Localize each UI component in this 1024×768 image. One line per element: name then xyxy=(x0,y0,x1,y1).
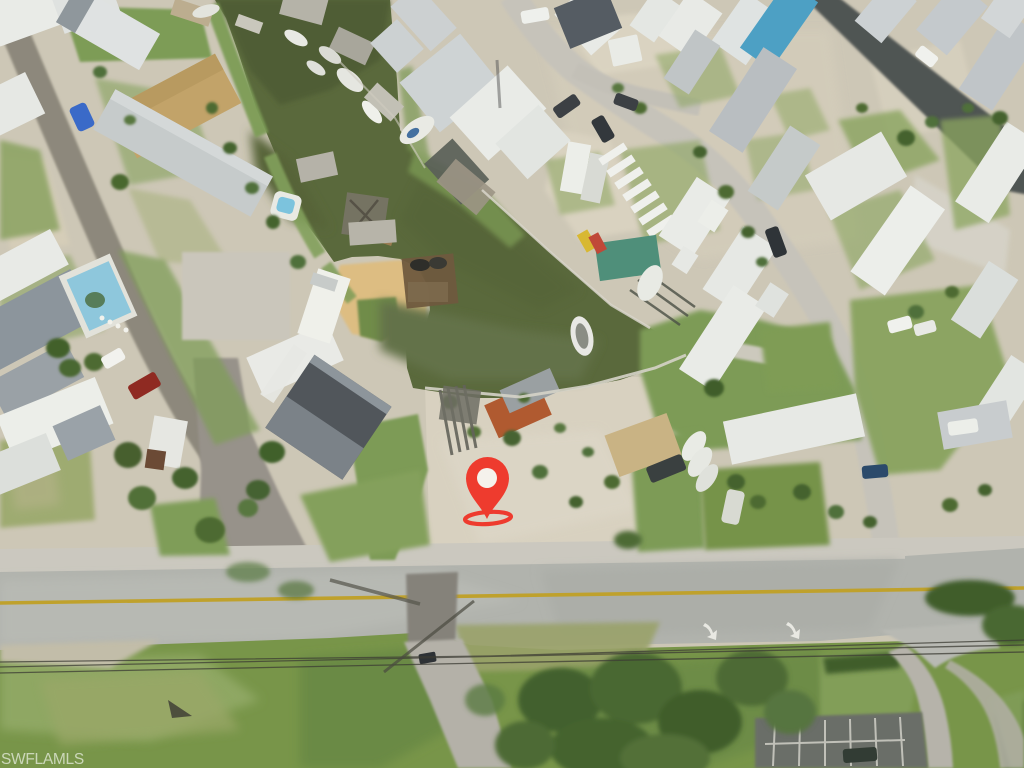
svg-text:SWFLAMLS: SWFLAMLS xyxy=(1,751,84,768)
